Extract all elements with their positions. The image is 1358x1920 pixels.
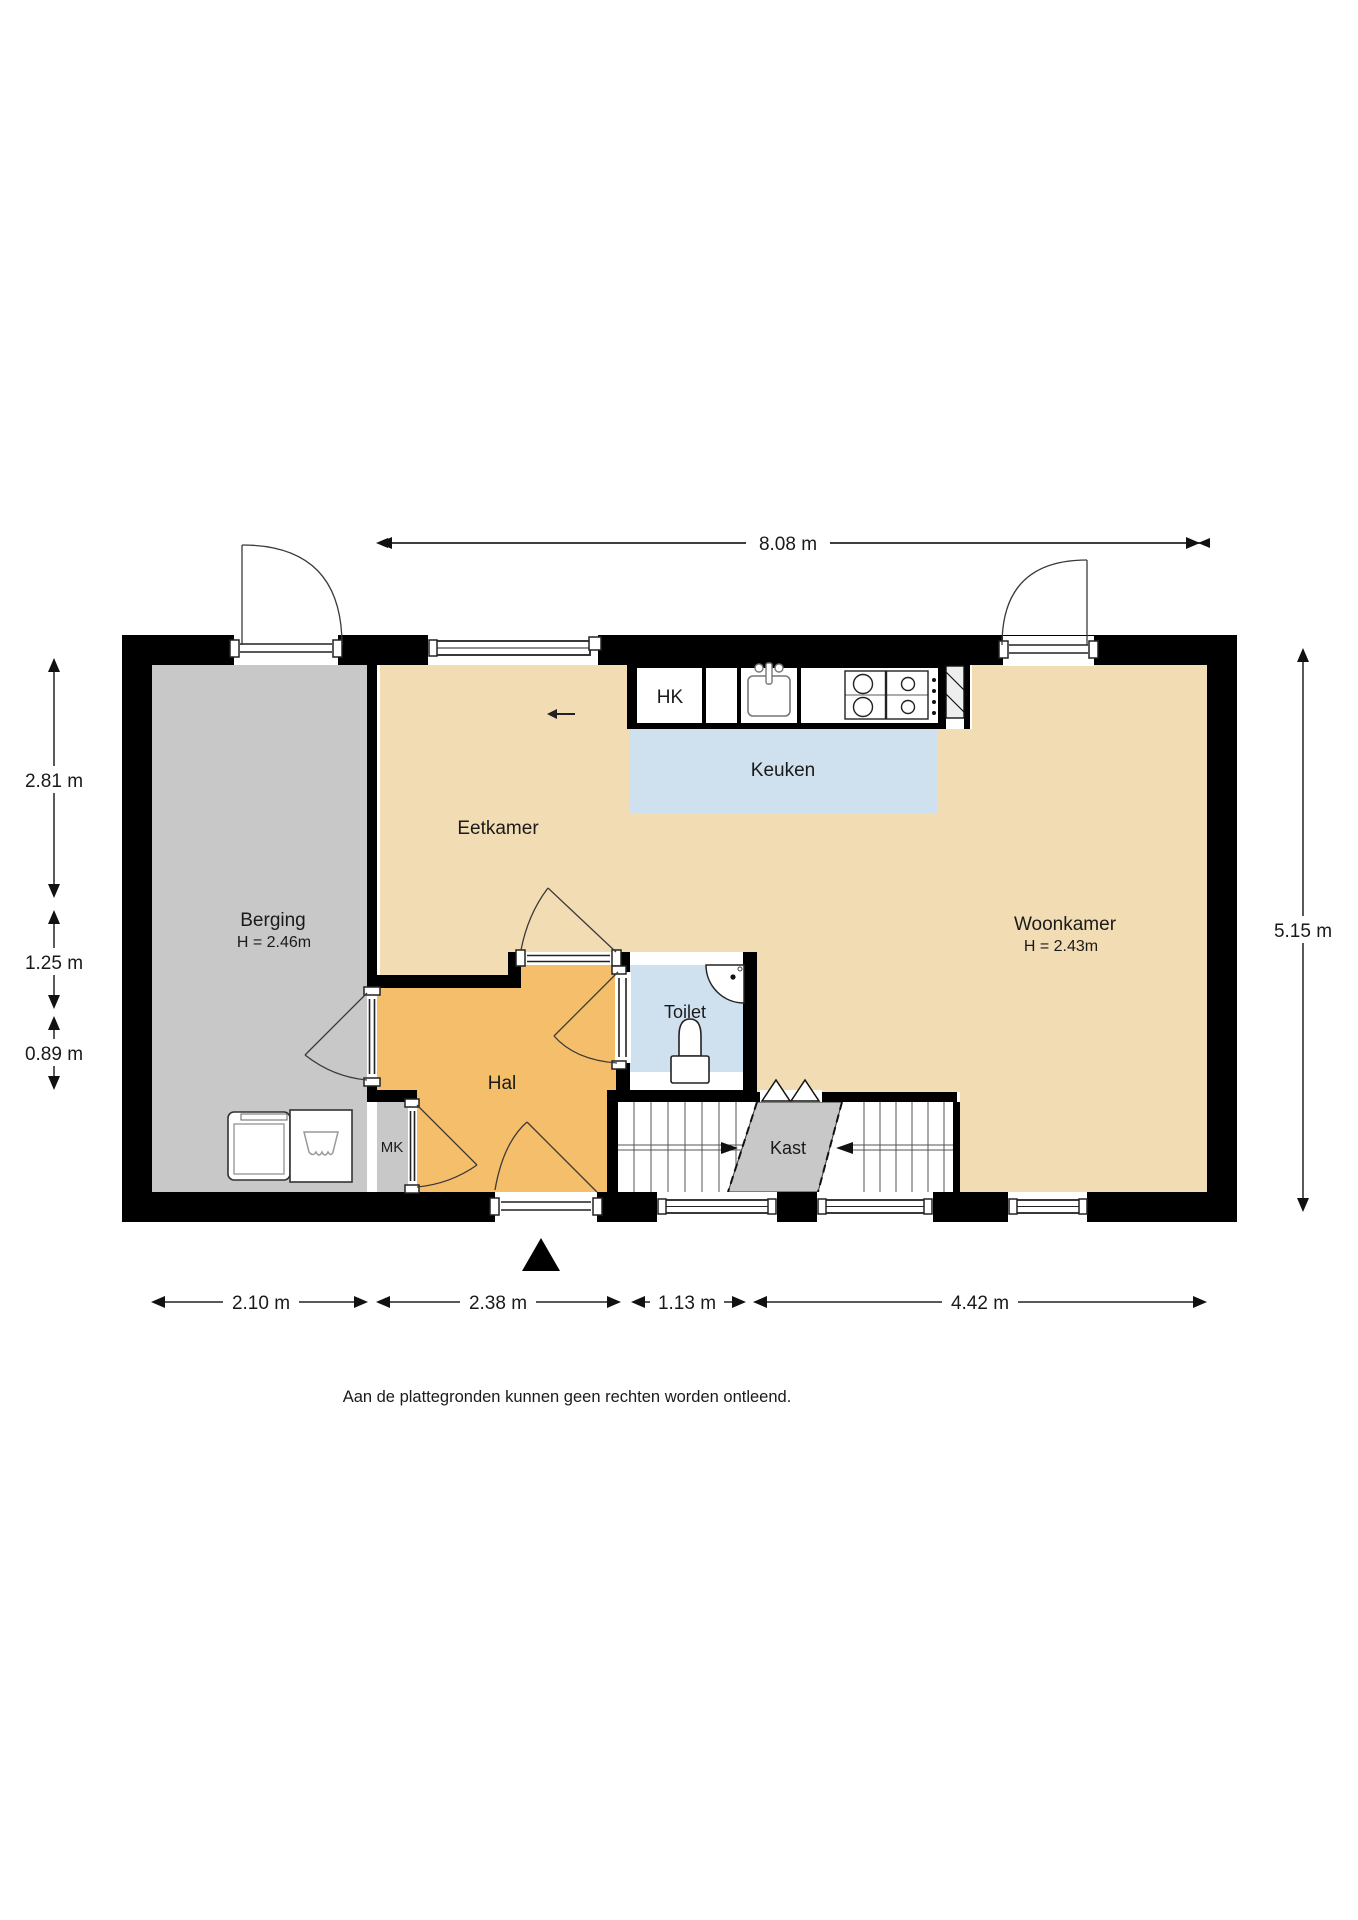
svg-text:5.15 m: 5.15 m — [1274, 921, 1332, 942]
floor-plan-drawing: Berging H = 2.46m Eetkamer Keuken HK Woo… — [0, 0, 1358, 1920]
eetkamer-window — [428, 635, 601, 665]
svg-text:2.10 m: 2.10 m — [232, 1293, 290, 1314]
svg-text:1.13 m: 1.13 m — [658, 1293, 716, 1314]
label-toilet: Toilet — [664, 1002, 706, 1022]
dimension-left: 2.81 m 1.25 m 0.89 m — [18, 658, 90, 1090]
svg-text:4.42 m: 4.42 m — [951, 1293, 1009, 1314]
label-hk: HK — [657, 687, 684, 708]
bottom-window-1 — [657, 1192, 777, 1222]
floor-plan-page: Berging H = 2.46m Eetkamer Keuken HK Woo… — [0, 0, 1358, 1920]
dimension-right: 5.15 m — [1265, 648, 1343, 1212]
svg-text:2.81 m: 2.81 m — [25, 771, 83, 792]
svg-text:0.89 m: 0.89 m — [25, 1044, 83, 1065]
label-kast: Kast — [770, 1138, 806, 1158]
label-berging-height: H = 2.46m — [237, 934, 311, 951]
berging-exterior-door — [230, 545, 342, 665]
tall-cabinet-icon — [946, 666, 964, 718]
label-berging: Berging — [240, 910, 306, 931]
dryer-icon — [290, 1110, 352, 1182]
label-keuken: Keuken — [751, 760, 815, 781]
dimension-top: 8.08 m — [378, 529, 1200, 556]
dimension-bottom: 2.10 m 2.38 m 1.13 m 4.42 m — [151, 1288, 1207, 1315]
label-eetkamer: Eetkamer — [457, 818, 539, 839]
bottom-window-2 — [817, 1192, 933, 1222]
svg-text:2.38 m: 2.38 m — [469, 1293, 527, 1314]
washing-machine-icon — [228, 1112, 290, 1180]
entrance-marker-icon — [522, 1238, 560, 1271]
woonkamer-exterior-door — [999, 560, 1098, 666]
label-hal: Hal — [488, 1073, 517, 1094]
svg-text:8.08 m: 8.08 m — [759, 534, 817, 555]
label-mk: MK — [381, 1139, 404, 1156]
label-woonkamer-height: H = 2.43m — [1024, 938, 1098, 955]
svg-text:1.25 m: 1.25 m — [25, 953, 83, 974]
label-woonkamer: Woonkamer — [1014, 914, 1117, 935]
bottom-window-3 — [1008, 1192, 1087, 1222]
disclaimer-text: Aan de plattegronden kunnen geen rechten… — [343, 1388, 792, 1406]
